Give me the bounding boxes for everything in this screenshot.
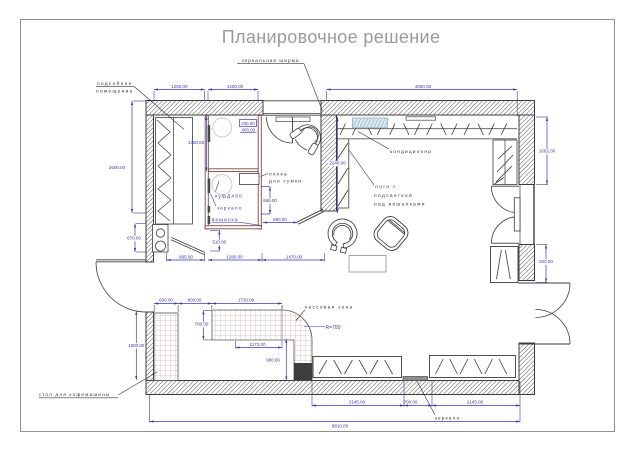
svg-text:4650.00: 4650.00: [415, 84, 432, 89]
svg-text:700.00: 700.00: [404, 400, 418, 405]
svg-text:1720.00: 1720.00: [238, 298, 255, 303]
svg-text:980.00: 980.00: [266, 358, 280, 363]
svg-text:660.00: 660.00: [263, 198, 277, 203]
svg-text:зеркало: зеркало: [435, 416, 461, 421]
svg-text:700.00: 700.00: [195, 322, 209, 327]
svg-text:800.00: 800.00: [188, 298, 202, 303]
svg-text:стол для кофемашины: стол для кофемашины: [39, 392, 111, 398]
svg-text:2600.00: 2600.00: [109, 165, 126, 170]
svg-text:R=700: R=700: [326, 325, 341, 331]
svg-text:890.00: 890.00: [273, 217, 287, 222]
svg-text:помещение: помещение: [96, 90, 134, 95]
svg-text:пуфД450: пуфД450: [215, 193, 243, 199]
svg-text:895.00: 895.00: [179, 254, 193, 259]
svg-text:над вешалками: над вешалками: [374, 202, 426, 207]
svg-text:лого с: лого с: [375, 185, 397, 190]
svg-text:510.00: 510.00: [212, 240, 226, 245]
svg-text:Планировочное решение: Планировочное решение: [222, 27, 441, 47]
svg-text:для сумки: для сумки: [269, 179, 302, 184]
svg-text:670.00: 670.00: [127, 236, 141, 241]
svg-text:920.00: 920.00: [539, 259, 553, 264]
svg-text:400.00: 400.00: [242, 127, 256, 132]
svg-text:1662.00: 1662.00: [539, 149, 556, 154]
svg-text:2145.00: 2145.00: [349, 400, 366, 405]
svg-text:подсветкой: подсветкой: [374, 192, 413, 199]
svg-text:1250.00: 1250.00: [171, 84, 188, 89]
svg-text:зеркальная ширма: зеркальная ширма: [241, 59, 299, 64]
svg-text:1200.00: 1200.00: [227, 84, 244, 89]
svg-text:1600.00: 1600.00: [128, 343, 145, 348]
svg-text:2240.00: 2240.00: [329, 161, 346, 166]
svg-text:600.00: 600.00: [159, 298, 173, 303]
svg-text:кондиционер: кондиционер: [390, 150, 432, 155]
svg-text:2145.00: 2145.00: [467, 400, 484, 405]
svg-text:кассовая зона: кассовая зона: [305, 306, 354, 311]
svg-text:230.00: 230.00: [241, 121, 255, 126]
svg-text:1300.00: 1300.00: [188, 140, 205, 145]
svg-text:зеркало: зеркало: [217, 207, 243, 212]
svg-text:1173.00: 1173.00: [250, 342, 266, 347]
svg-text:1280.00: 1280.00: [226, 254, 243, 259]
svg-text:полка: полка: [269, 172, 288, 177]
svg-text:8810.00: 8810.00: [332, 424, 349, 429]
svg-text:1470.00: 1470.00: [286, 254, 303, 259]
